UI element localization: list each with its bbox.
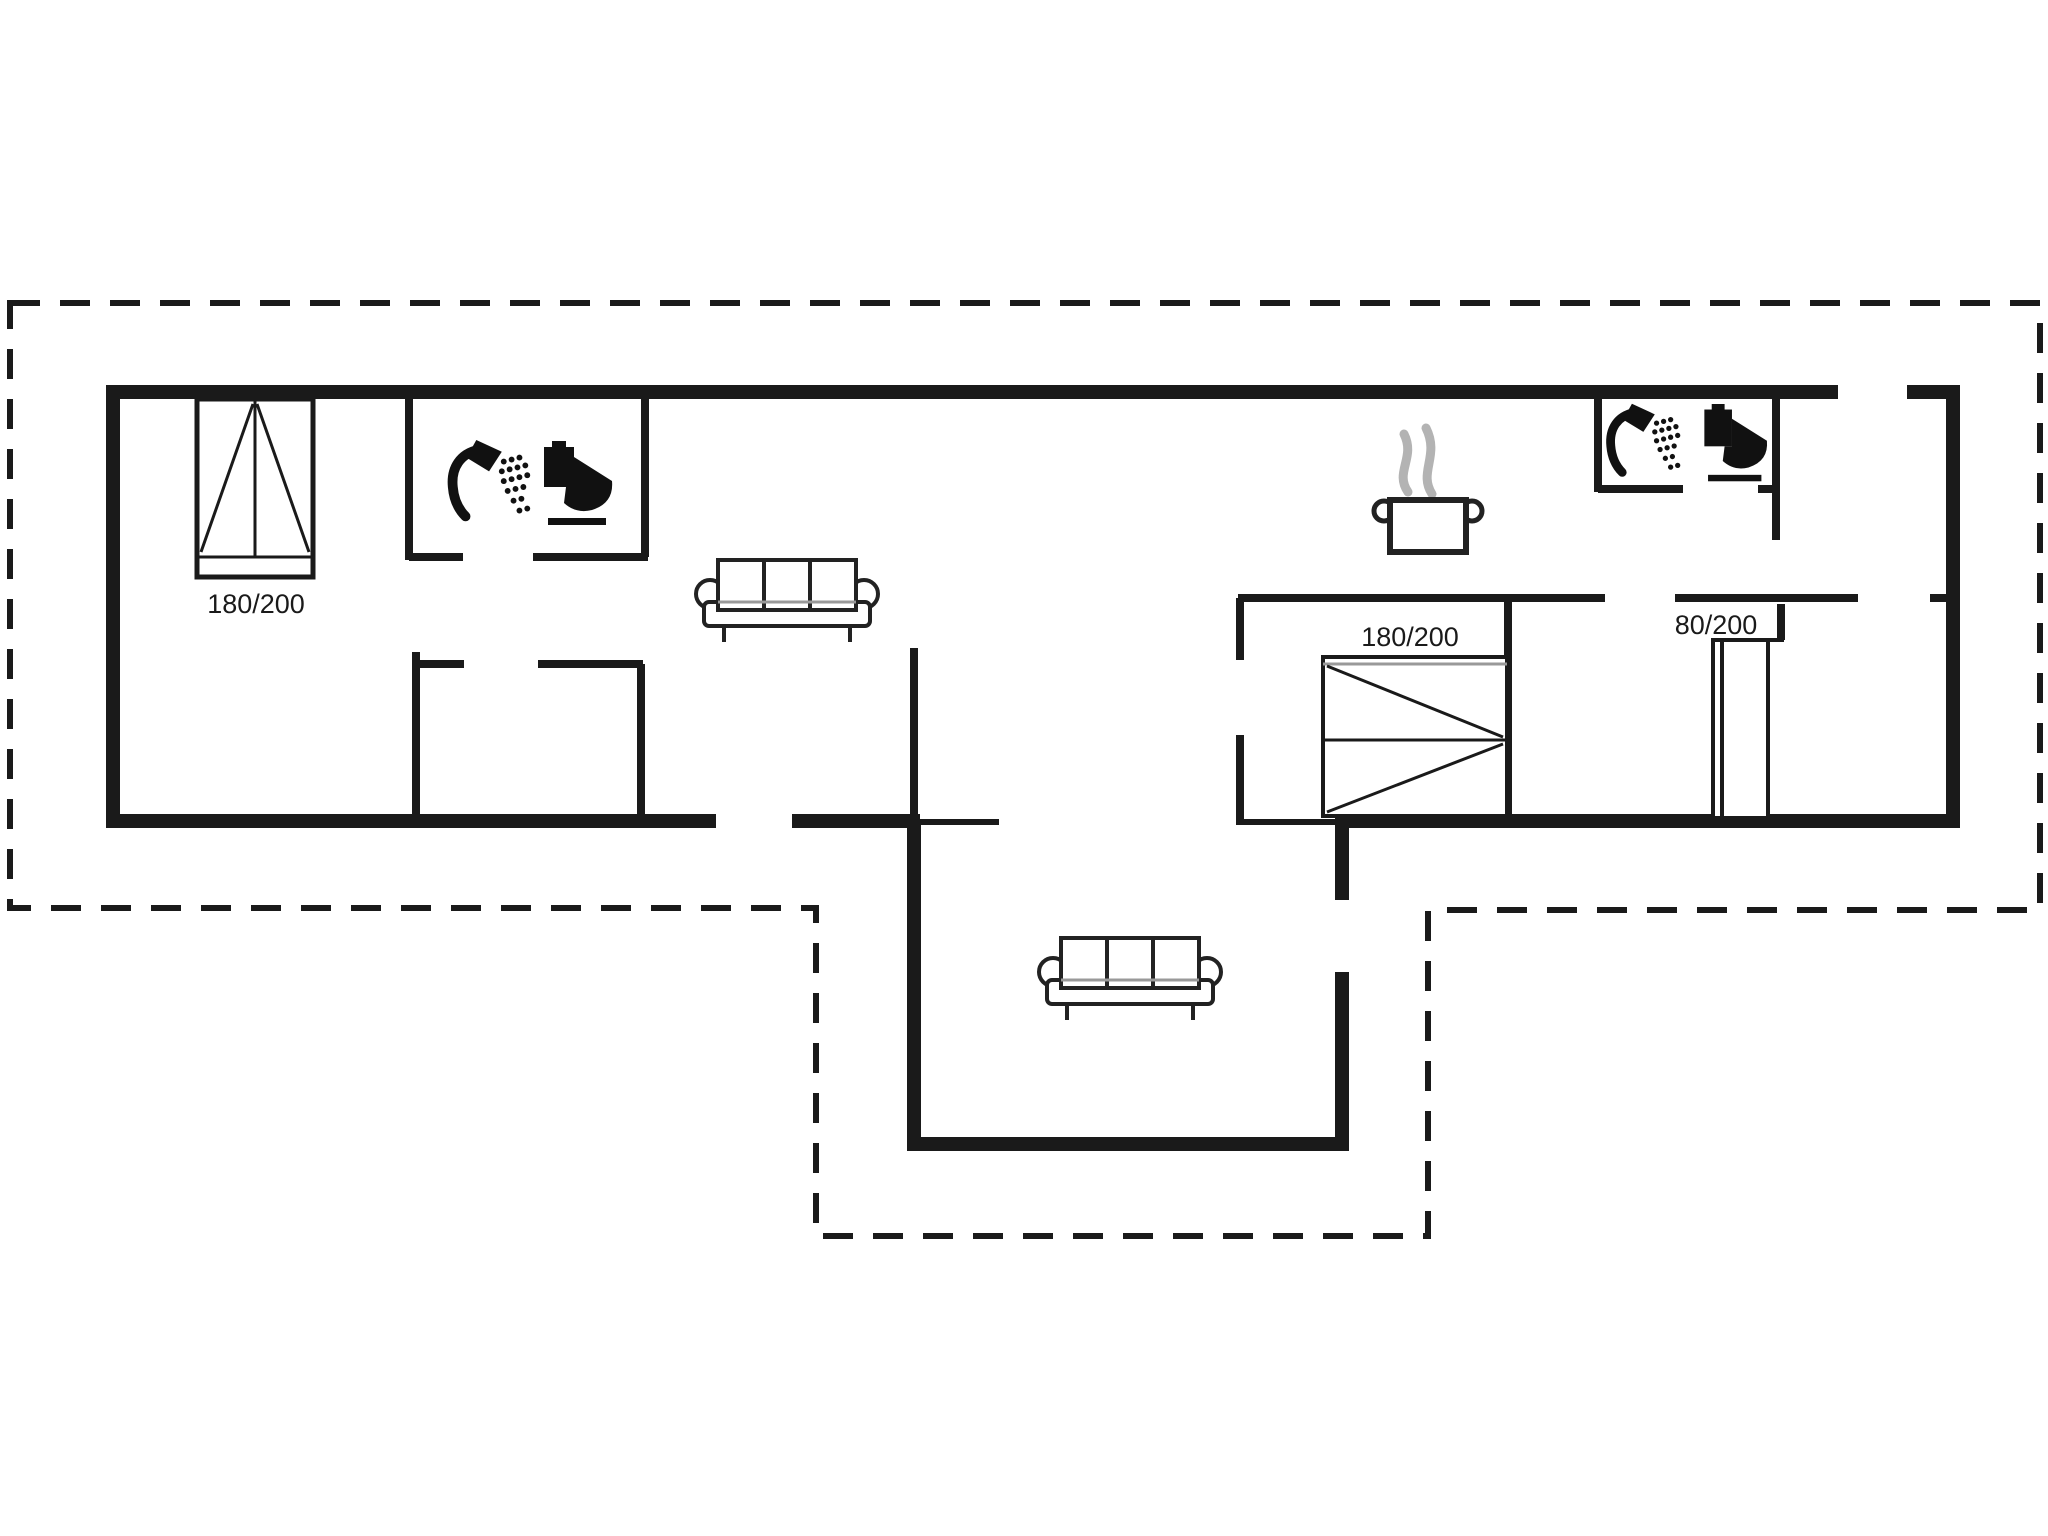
double-bed-icon xyxy=(197,399,313,577)
sofa-icon xyxy=(696,560,878,642)
shower-icon xyxy=(453,440,531,516)
sofa-icon xyxy=(1039,938,1221,1020)
floor-plan-svg: 180/200 180/200 80/200 xyxy=(0,0,2048,1536)
floor-plan: 180/200 180/200 80/200 xyxy=(0,0,2048,1536)
right-bed-size-label: 180/200 xyxy=(1361,622,1459,652)
exterior-walls xyxy=(106,385,1960,1151)
left-bed-size-label: 180/200 xyxy=(207,589,305,619)
toilet-icon xyxy=(544,441,612,525)
single-bed-icon xyxy=(1713,640,1784,818)
shower-icon xyxy=(1611,404,1681,473)
toilet-icon xyxy=(1704,404,1767,481)
cooking-pot-icon xyxy=(1374,428,1482,552)
steam-icon xyxy=(1403,428,1432,494)
double-bed-icon xyxy=(1323,657,1507,816)
bunk-bed-size-label: 80/200 xyxy=(1675,610,1758,640)
